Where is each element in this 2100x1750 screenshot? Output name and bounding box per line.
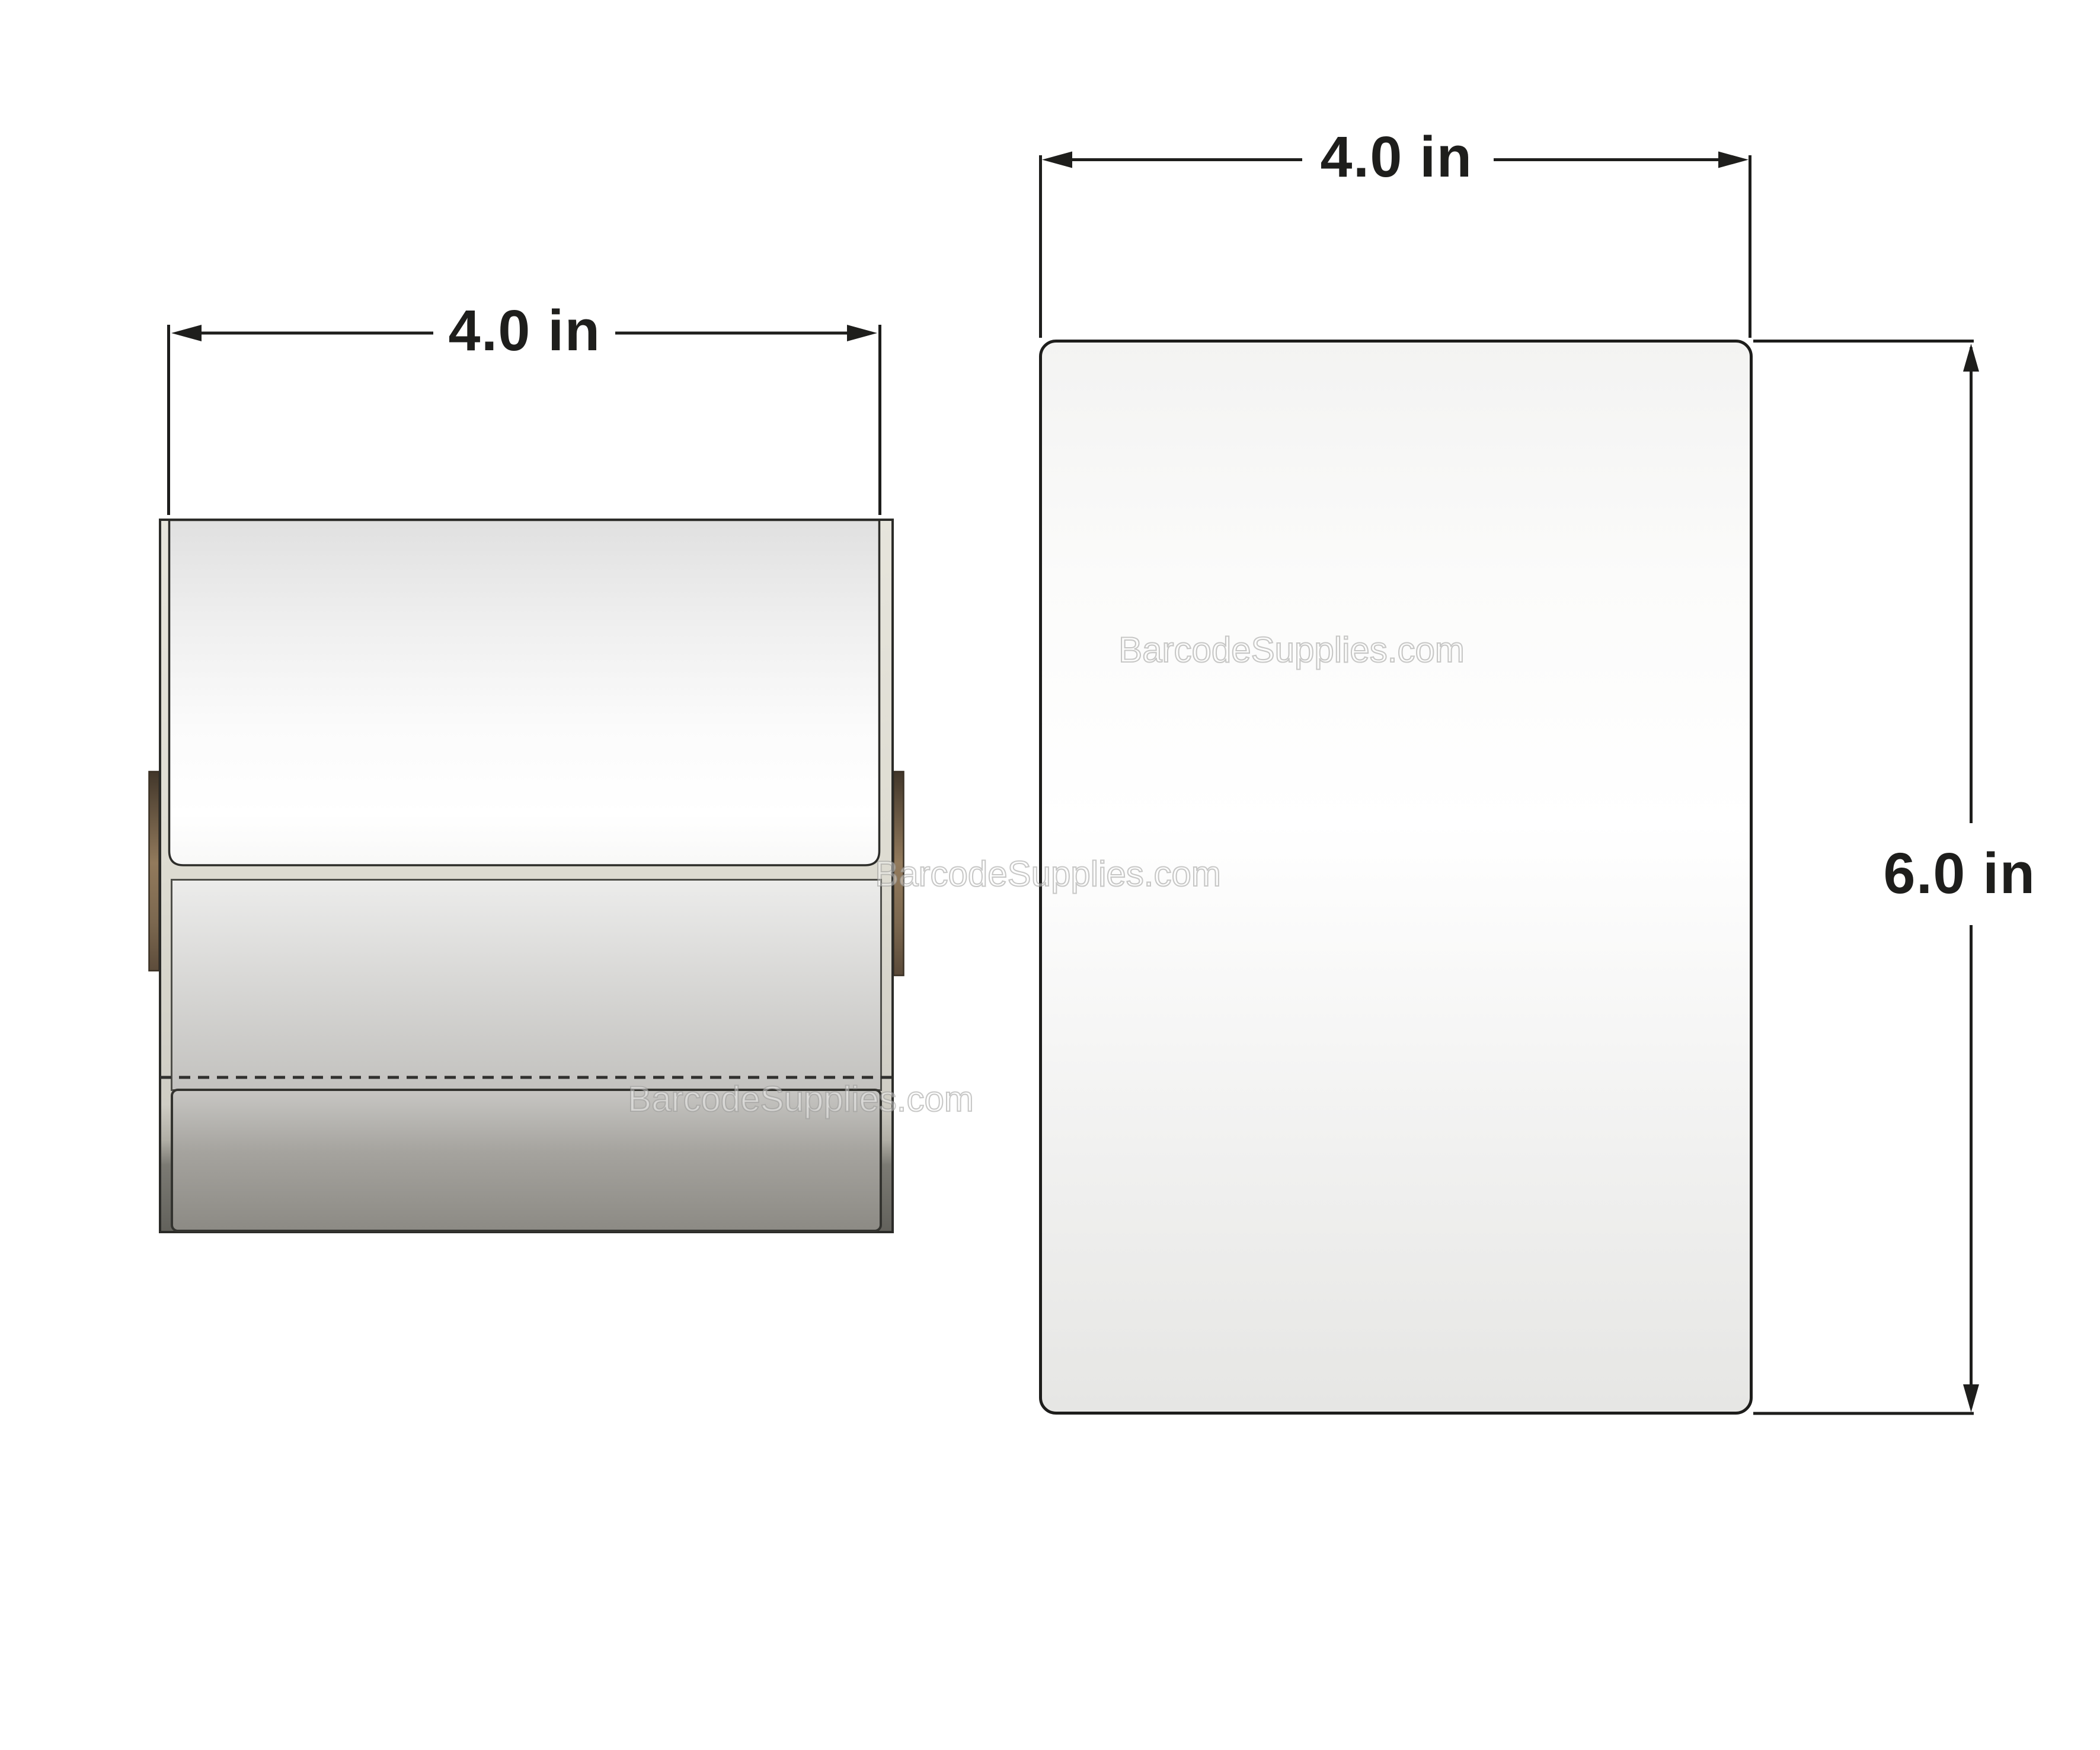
svg-text:BarcodeSupplies.com: BarcodeSupplies.com: [875, 854, 1221, 894]
svg-text:6.0 in: 6.0 in: [1884, 841, 2036, 906]
svg-text:BarcodeSupplies.com: BarcodeSupplies.com: [628, 1079, 974, 1119]
svg-text:4.0 in: 4.0 in: [449, 298, 601, 363]
svg-text:4.0 in: 4.0 in: [1321, 124, 1473, 189]
svg-text:BarcodeSupplies.com: BarcodeSupplies.com: [1118, 630, 1465, 670]
